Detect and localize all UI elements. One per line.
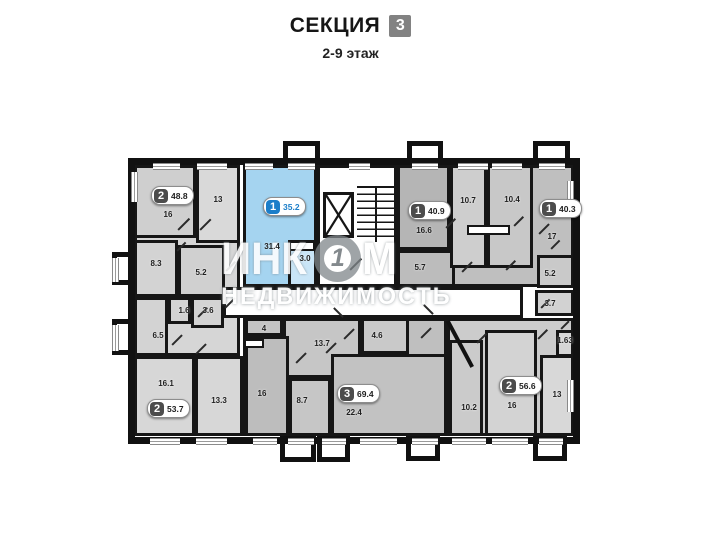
section-title-row: СЕКЦИЯ 3 <box>0 14 701 38</box>
room-area-label: 16 <box>494 401 530 411</box>
room-6-5 <box>134 297 168 356</box>
room-area-label: 4 <box>246 324 282 334</box>
badge-rooms-count: 2 <box>154 189 168 203</box>
window <box>452 438 486 445</box>
window <box>322 438 346 445</box>
plan-header: СЕКЦИЯ 3 2-9 этаж <box>0 14 701 61</box>
room-area-label: 8.3 <box>138 259 174 269</box>
fixture <box>467 225 510 235</box>
room-8-7 <box>289 378 331 436</box>
room-area-label: 10.7 <box>450 196 486 206</box>
window <box>288 163 315 170</box>
badge-area: 40.3 <box>559 204 576 214</box>
staircase <box>357 186 394 242</box>
window <box>360 438 397 445</box>
window <box>539 438 563 445</box>
badge-rooms-count: 3 <box>340 387 354 401</box>
window <box>458 163 488 170</box>
room-area-label: 10.2 <box>451 403 487 413</box>
window <box>112 258 119 282</box>
room-area-label: 3.6 <box>190 306 226 316</box>
apartment-badge: 256.6 <box>499 376 542 395</box>
room-area-label: 22.4 <box>336 408 372 418</box>
room-area-label: 5.2 <box>183 268 219 278</box>
room-area-label: 3.0 <box>287 254 323 264</box>
apartment-badge: 140.3 <box>539 199 582 218</box>
window <box>412 163 438 170</box>
room-area-label: 13.7 <box>304 339 340 349</box>
room-area-label: 16.6 <box>406 226 442 236</box>
window <box>197 163 227 170</box>
badge-rooms-count: 2 <box>150 402 164 416</box>
badge-area: 35.2 <box>283 202 300 212</box>
window <box>349 163 370 170</box>
elevator-shaft <box>323 192 354 238</box>
room-area-label: 17 <box>534 232 570 242</box>
window <box>131 172 138 202</box>
floor-plan: ИНК 1 М НЕДВИЖИМОСТЬ 248.8135.2140.9140.… <box>0 0 701 556</box>
room-area-label: 13.3 <box>201 396 237 406</box>
room-area-label: 10.4 <box>494 195 530 205</box>
section-number-badge: 3 <box>389 15 411 37</box>
apartment-badge: 248.8 <box>151 186 194 205</box>
apartment-badge: 140.9 <box>408 201 451 220</box>
staircase-divider <box>375 188 377 242</box>
badge-area: 56.6 <box>519 381 536 391</box>
room-10-4 <box>487 165 533 268</box>
badge-rooms-count: 2 <box>502 379 516 393</box>
room-area-label: 8.7 <box>284 396 320 406</box>
fixture <box>289 241 315 251</box>
room-16-1 <box>134 356 195 436</box>
window <box>492 163 522 170</box>
section-title: СЕКЦИЯ <box>290 14 381 38</box>
room-area-label: 6.5 <box>140 331 176 341</box>
window <box>245 163 273 170</box>
room-area-label: 16 <box>244 389 280 399</box>
room-area-label: 16.1 <box>148 379 184 389</box>
apartment-badge: 369.4 <box>337 384 380 403</box>
badge-rooms-count: 1 <box>542 202 556 216</box>
badge-area: 48.8 <box>171 191 188 201</box>
apartment-badge: 135.2 <box>263 197 306 216</box>
badge-area: 40.9 <box>428 206 445 216</box>
badge-rooms-count: 1 <box>411 204 425 218</box>
room-16-mid <box>245 336 289 436</box>
room-area-label: 5.2 <box>532 269 568 279</box>
window <box>196 438 227 445</box>
badge-area: 53.7 <box>167 404 184 414</box>
window <box>253 438 277 445</box>
window <box>112 325 119 351</box>
room-area-label: 5.7 <box>402 263 438 273</box>
floors-subtitle: 2-9 этаж <box>0 45 701 61</box>
window <box>150 438 180 445</box>
corridor <box>223 287 523 318</box>
room-area-label: 1.63 <box>547 336 583 346</box>
room-area-label: 13 <box>539 390 575 400</box>
window <box>539 163 565 170</box>
window <box>288 438 314 445</box>
room-area-label: 31.4 <box>254 242 290 252</box>
window <box>492 438 528 445</box>
apartment-badge: 253.7 <box>147 399 190 418</box>
badge-area: 69.4 <box>357 389 374 399</box>
badge-rooms-count: 1 <box>266 200 280 214</box>
fixture <box>244 339 264 348</box>
room-area-label: 3.7 <box>532 299 568 309</box>
room-area-label: 16 <box>150 210 186 220</box>
window <box>412 438 438 445</box>
room-area-label: 13 <box>200 195 236 205</box>
room-area-label: 4.6 <box>359 331 395 341</box>
elevator-cross-icon <box>326 195 351 235</box>
window <box>153 163 180 170</box>
room-10-7 <box>450 165 487 268</box>
